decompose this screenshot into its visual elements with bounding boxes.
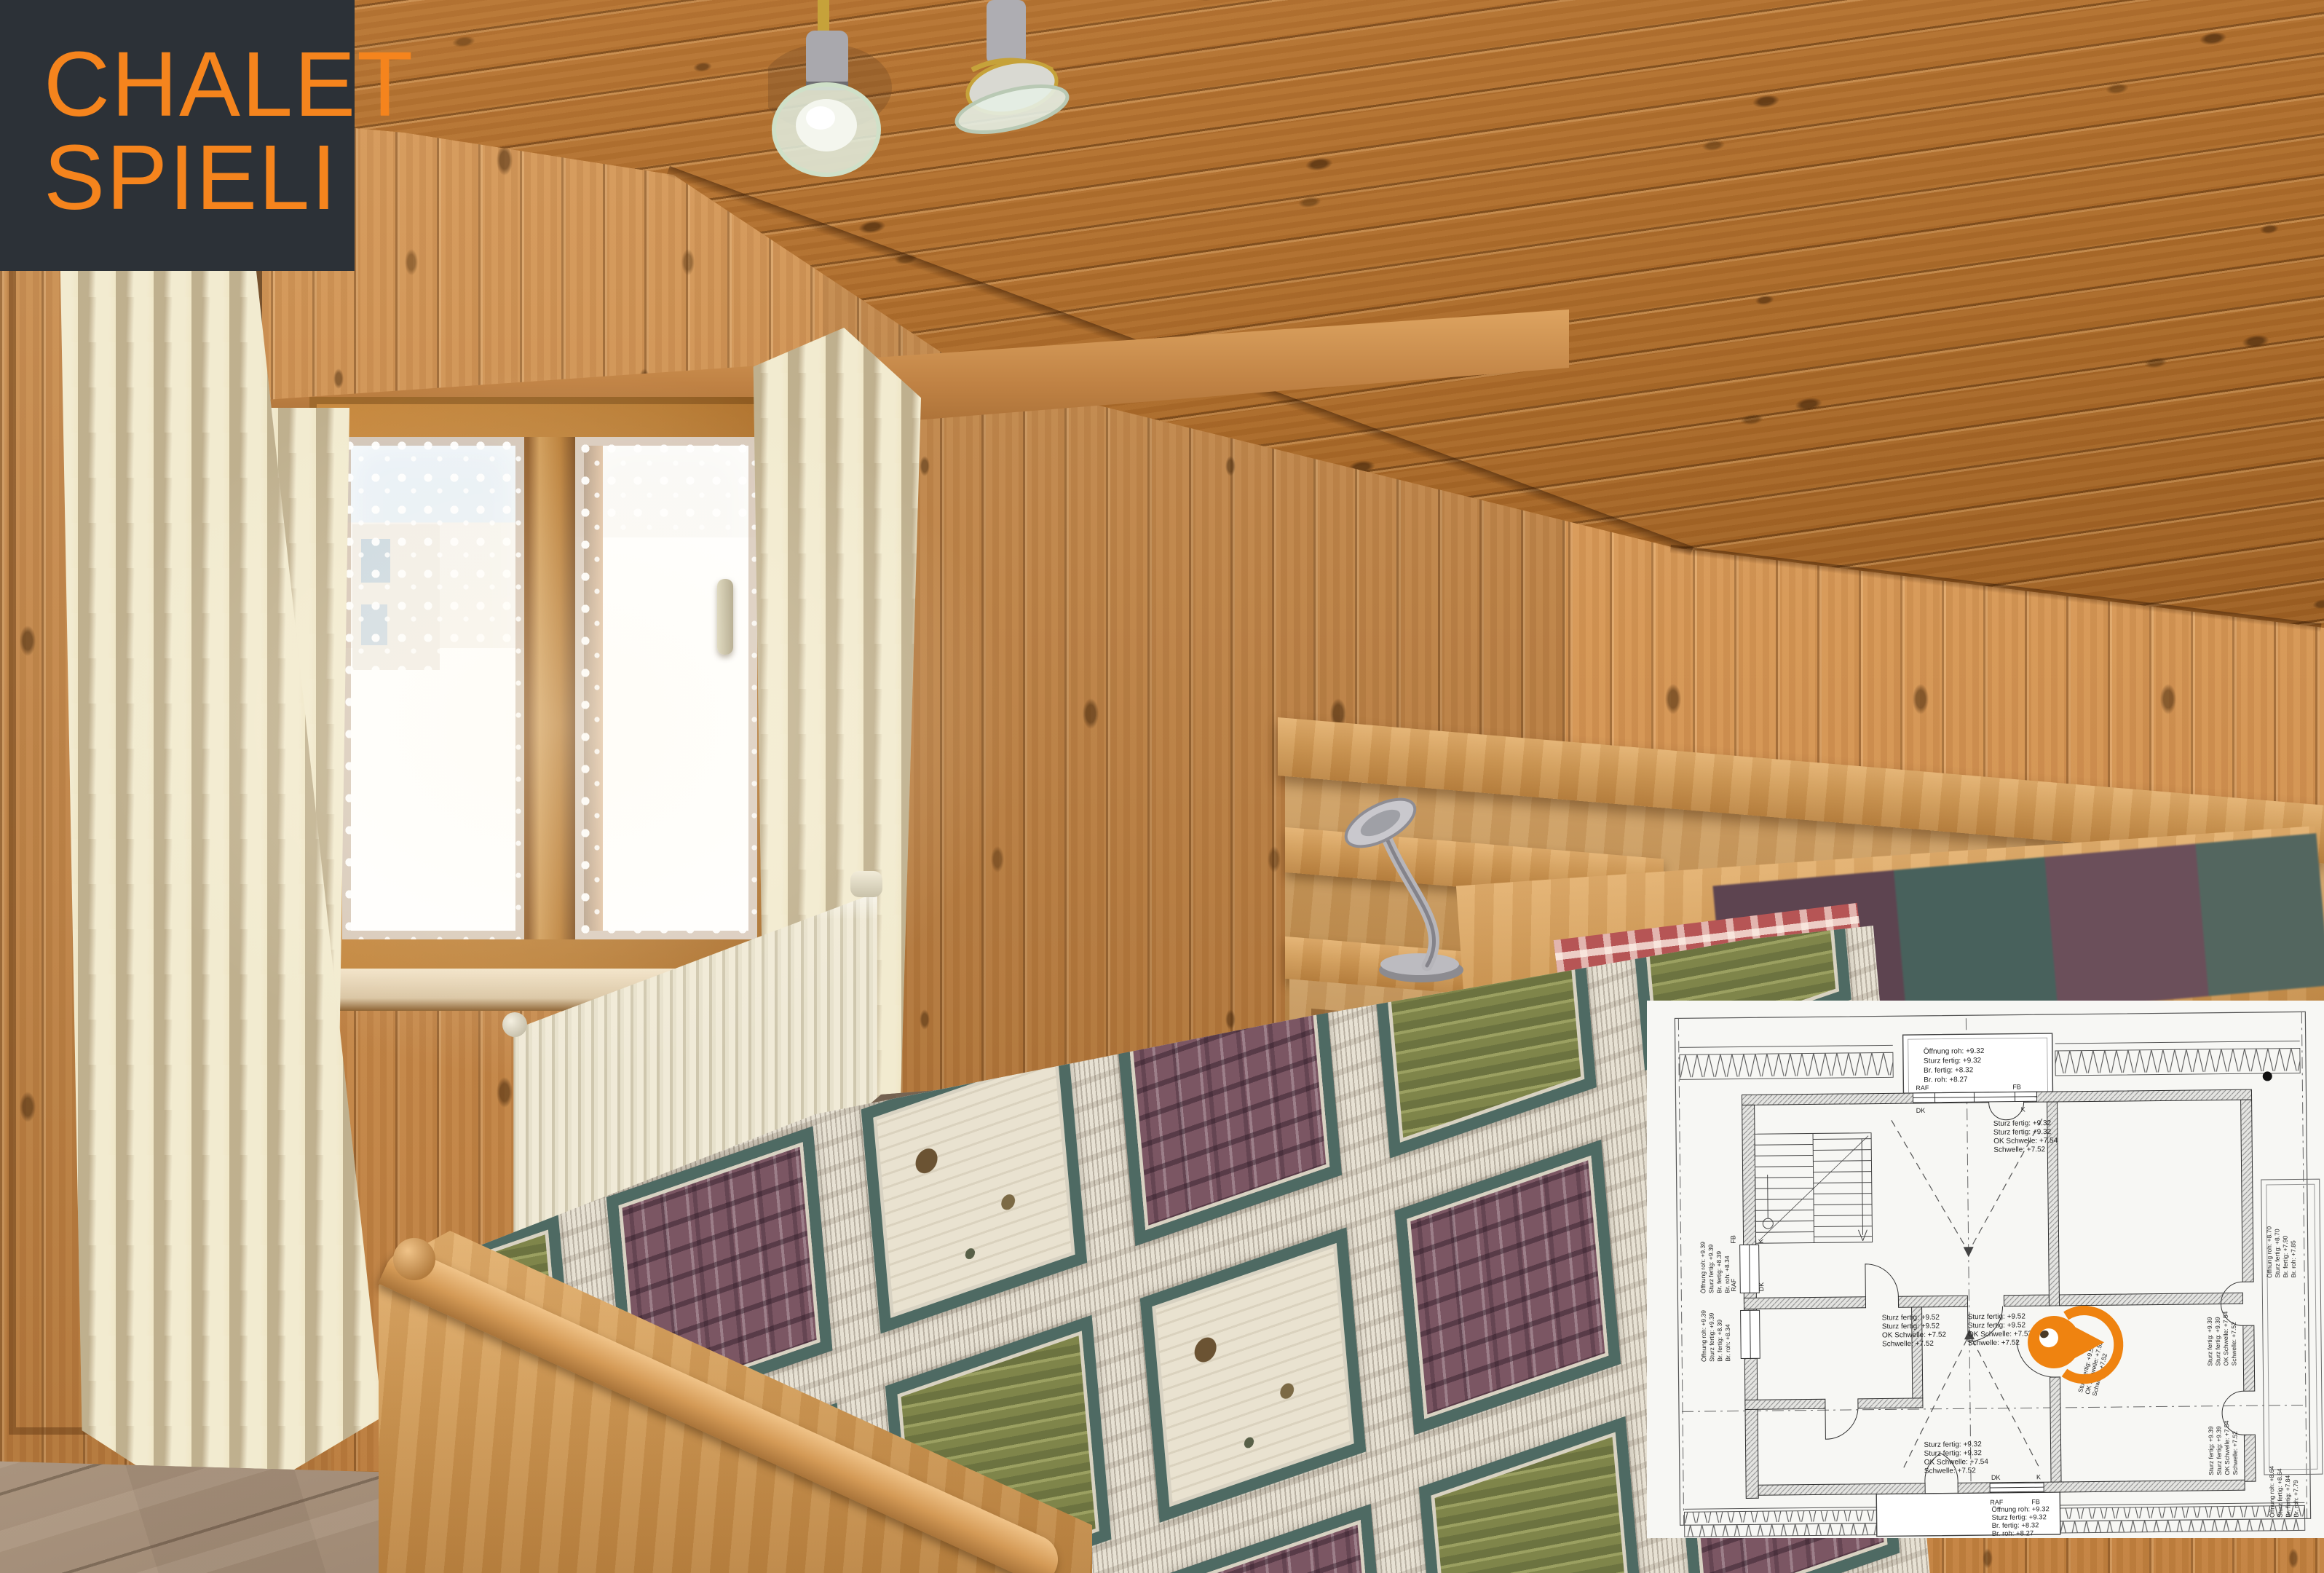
plan-label: Schwelle: +7.52 xyxy=(1882,1340,1934,1349)
quilt-patch xyxy=(1140,1227,1367,1523)
plan-label: OK Schwelle: +7.52 xyxy=(1968,1330,2033,1339)
plan-drawing: Öffnung roh: +9.32 Sturz fertig: +9.32 B… xyxy=(1675,1012,2323,1541)
plan-label: Öffnung roh: +9.39 xyxy=(1700,1310,1708,1362)
plan-label: Öffnung roh: +9.32 xyxy=(1991,1505,2049,1514)
plan-label: Sturz fertig: +9.32 xyxy=(1924,1449,1983,1458)
plan-label: Sturz fertig: +9.39 xyxy=(1707,1244,1715,1293)
plan-label: Sturz fertig: +9.32 xyxy=(1993,1128,2052,1137)
plan-label: Sturz fertig: +9.32 xyxy=(1993,1119,2052,1128)
quilt-patch xyxy=(1395,1140,1621,1435)
plan-label: Br. fertig: +8.39 xyxy=(1716,1320,1724,1362)
plan-label: Öffnung roh: +8.64 xyxy=(2268,1466,2276,1518)
plan-label: Br. fertig: +8.32 xyxy=(1992,1521,2039,1530)
plan-code: K xyxy=(1758,1239,1765,1243)
plan-code: FB xyxy=(2031,1498,2040,1505)
location-pin-icon[interactable] xyxy=(2028,1310,2119,1379)
quilt-patch xyxy=(1164,1504,1391,1573)
plan-label: Öffnung roh: +9.32 xyxy=(1924,1046,1985,1056)
plan-label: Sturz fertig: +9.39 xyxy=(2206,1317,2214,1366)
plan-label: Sturz fertig: +9.52 xyxy=(1882,1314,1940,1322)
plan-label: OK Schwelle: +7.54 xyxy=(2223,1420,2231,1475)
plan-label: Sturz fertig: +9.52 xyxy=(1882,1322,1940,1331)
plan-label: Br. roh: +7.85 xyxy=(2290,1240,2298,1278)
plan-label: OK Schwelle: +7.54 xyxy=(2222,1311,2230,1365)
window-mullion xyxy=(524,437,575,939)
window xyxy=(309,397,790,987)
plan-code: DK xyxy=(1991,1474,2001,1481)
plan-label: Sturz fertig: +9.32 xyxy=(1924,1057,1982,1065)
radiator-valve[interactable] xyxy=(502,1012,527,1037)
plan-code: K xyxy=(2021,1105,2025,1113)
window-pane-left[interactable] xyxy=(342,437,524,939)
desk-lamp[interactable] xyxy=(1340,786,1478,990)
window-pane-right[interactable] xyxy=(575,437,757,939)
plan-label: Br. fertig: +8.39 xyxy=(1715,1251,1723,1293)
plan-label: Sturz fertig: +9.52 xyxy=(1968,1312,2026,1321)
plan-label: Schwelle: +7.52 xyxy=(1968,1339,2020,1348)
floor-plan-inset: Öffnung roh: +9.32 Sturz fertig: +9.32 B… xyxy=(1647,1001,2324,1538)
plan-label: OK Schwelle: +7.52 xyxy=(1882,1331,1947,1340)
plan-code: DK xyxy=(1916,1107,1926,1114)
badge-title-line2: SPIELI xyxy=(44,131,355,224)
plan-label: Sturz fertig: +8.64 xyxy=(2276,1468,2284,1518)
window-handle[interactable] xyxy=(717,579,733,655)
plan-terrace xyxy=(2261,1179,2323,1475)
plan-label: Schwelle: +7.52 xyxy=(1993,1146,2045,1154)
plan-code: FB xyxy=(1729,1235,1736,1244)
ceiling-spotlight-1 xyxy=(768,0,892,189)
plan-label: Br. roh: +7.79 xyxy=(2292,1480,2300,1518)
plan-label: Öffnung roh: +8.70 xyxy=(2265,1226,2273,1278)
footboard-knob xyxy=(393,1238,435,1280)
plan-code: K xyxy=(2036,1473,2041,1481)
plan-label: Schwelle: +7.52 xyxy=(2230,1322,2238,1366)
lace-curtain-right xyxy=(575,437,757,939)
plan-label: Br. roh: +8.27 xyxy=(1924,1076,1968,1084)
plan-label: Sturz fertig: +8.70 xyxy=(2273,1229,2281,1278)
plan-code: RAF xyxy=(1916,1084,1929,1092)
plan-code: RAF xyxy=(1730,1278,1737,1292)
chalet-bedroom-photo: CHALET SPIELI xyxy=(0,0,2324,1573)
badge-title-line1: CHALET xyxy=(44,38,355,131)
plan-label: Br. fertig: +8.32 xyxy=(1924,1066,1974,1075)
plan-label: OK Schwelle: +7.54 xyxy=(1993,1137,2058,1146)
plan-code: DK xyxy=(1758,1282,1765,1292)
quilt-patch xyxy=(1419,1416,1645,1573)
ceiling-spotlight-2 xyxy=(943,0,1074,167)
plan-label: Br. roh: +8.27 xyxy=(1992,1529,2034,1538)
plan-label: Schwelle: +7.52 xyxy=(2231,1431,2239,1475)
lace-curtain-left xyxy=(342,437,524,939)
chalet-spieli-badge: CHALET SPIELI xyxy=(0,0,355,271)
plan-code: FB xyxy=(2012,1083,2021,1090)
plan-label: Schwelle: +7.52 xyxy=(1924,1467,1976,1475)
plan-label: Br. fertig: +7.84 xyxy=(2284,1475,2292,1517)
plan-label: Sturz fertig: +9.39 xyxy=(2215,1426,2223,1475)
plan-label: Öffnung roh: +9.39 xyxy=(1699,1242,1707,1293)
plan-label: Br. fertig: +7.90 xyxy=(2282,1235,2290,1277)
plan-label: Sturz fertig: +9.39 xyxy=(2207,1426,2215,1475)
plan-label: Sturz fertig: +9.39 xyxy=(2214,1317,2222,1366)
plan-label: Sturz fertig: +9.32 xyxy=(1992,1513,2047,1522)
plan-label: OK Schwelle: +7.54 xyxy=(1924,1458,1989,1467)
plan-label: Sturz fertig: +9.39 xyxy=(1708,1312,1716,1362)
plan-stairs xyxy=(1755,1133,1873,1244)
plan-doors xyxy=(1822,1100,2245,1484)
plan-label: Br. roh: +8.34 xyxy=(1724,1324,1732,1362)
plan-label: Sturz fertig: +9.52 xyxy=(1968,1321,2026,1330)
plan-label: Sturz fertig: +9.32 xyxy=(1924,1440,1982,1449)
radiator-end-cap xyxy=(850,871,882,897)
plan-code: RAF xyxy=(1990,1499,2004,1506)
